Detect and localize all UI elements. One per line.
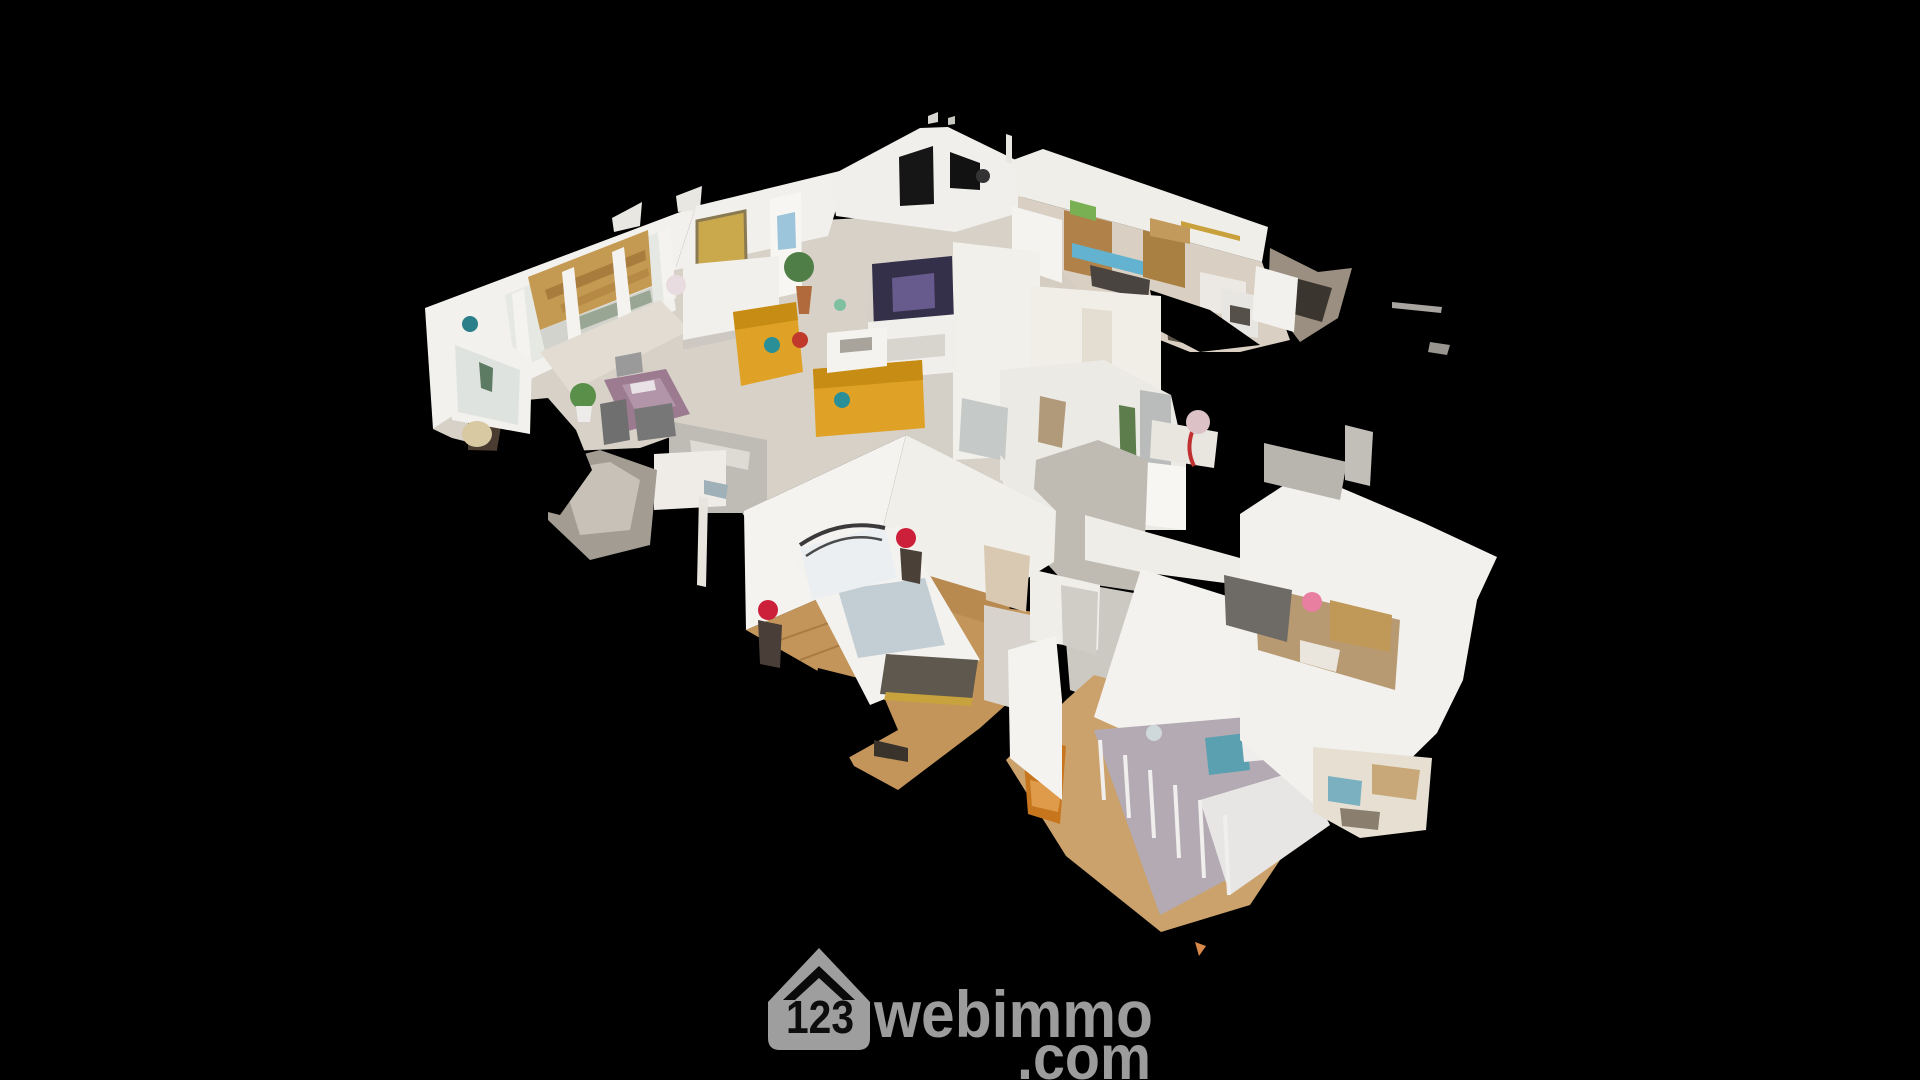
svg-text:.com: .com [1017, 1023, 1151, 1080]
svg-text:123: 123 [786, 991, 854, 1043]
